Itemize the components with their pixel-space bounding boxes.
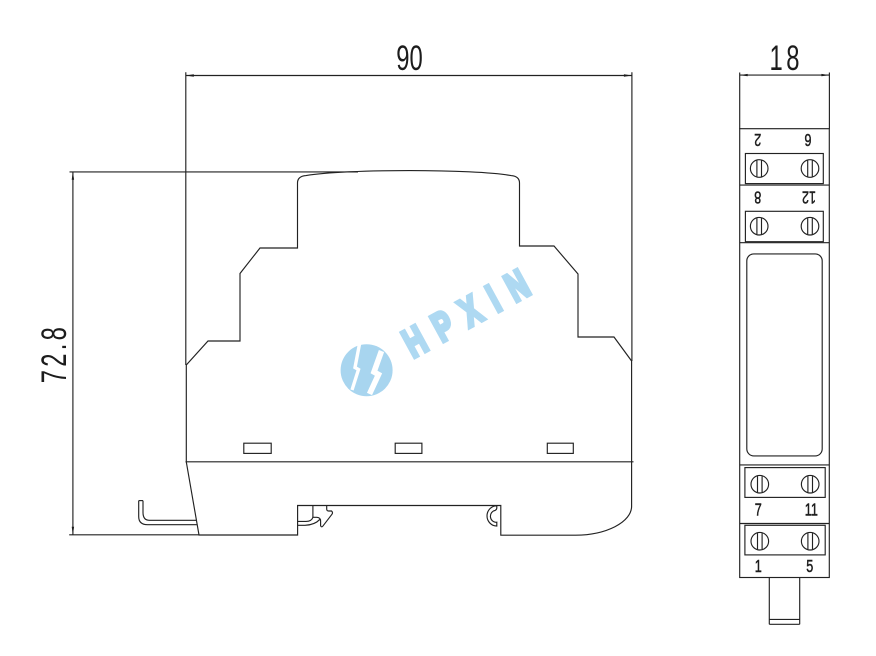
- svg-text:18: 18: [769, 40, 803, 79]
- svg-text:72.8: 72.8: [36, 324, 75, 383]
- svg-text:11: 11: [805, 500, 818, 520]
- svg-text:1: 1: [755, 557, 762, 577]
- svg-text:90: 90: [396, 40, 422, 79]
- svg-text:HPXIN: HPXIN: [396, 256, 548, 367]
- svg-text:8: 8: [754, 187, 761, 207]
- svg-text:5: 5: [806, 557, 813, 577]
- svg-text:2: 2: [754, 129, 761, 149]
- svg-text:6: 6: [804, 129, 811, 149]
- svg-text:7: 7: [755, 500, 762, 520]
- svg-text:12: 12: [802, 187, 816, 207]
